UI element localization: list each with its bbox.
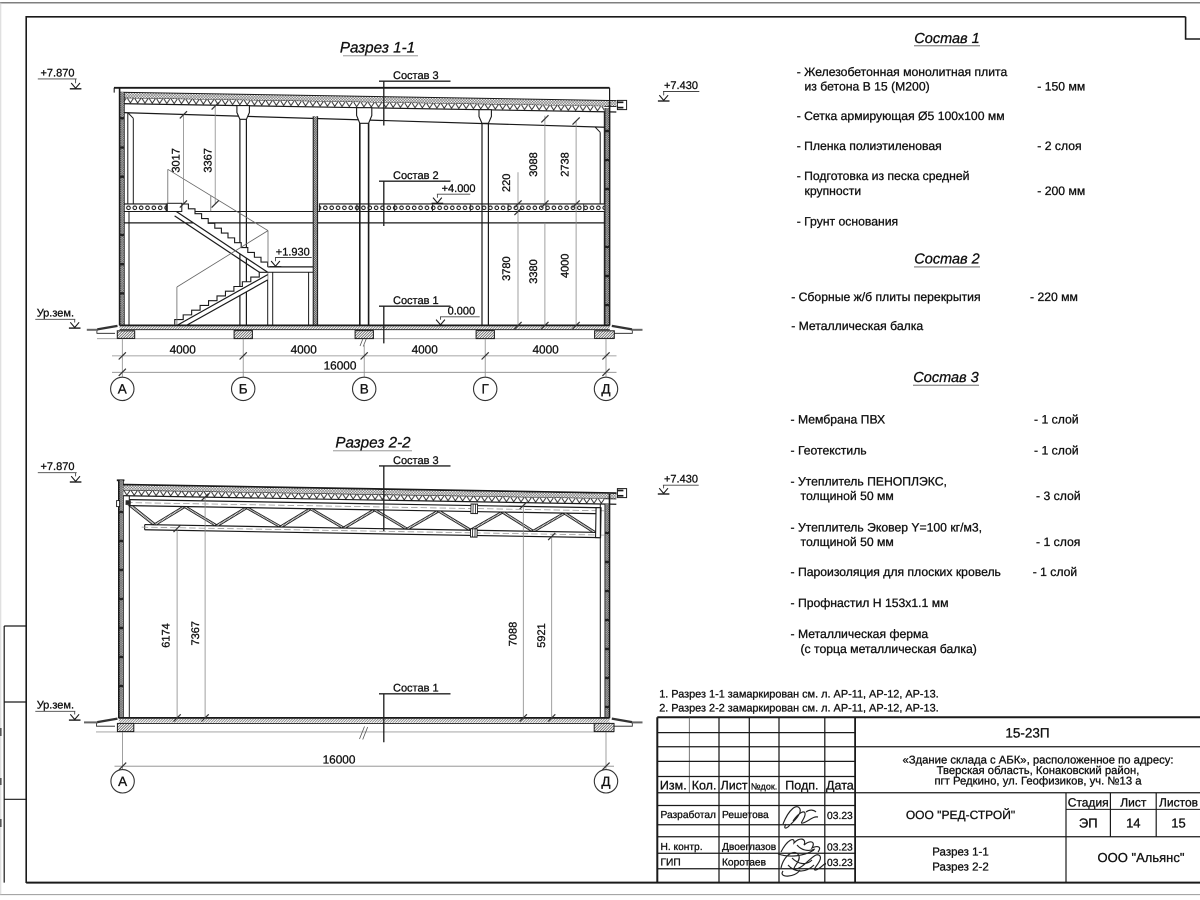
svg-text:3088: 3088: [528, 152, 540, 176]
svg-text:+7.430: +7.430: [664, 473, 698, 485]
svg-text:- Профнастил Н 153х1.1 мм: - Профнастил Н 153х1.1 мм: [791, 596, 949, 610]
svg-text:+1.930: +1.930: [276, 246, 310, 258]
svg-text:+7.870: +7.870: [41, 461, 75, 473]
svg-text:16000: 16000: [323, 752, 356, 766]
svg-text:- Геотекстиль: - Геотекстиль: [791, 444, 867, 458]
svg-text:Состав 1: Состав 1: [393, 683, 439, 695]
svg-text:Состав 1: Состав 1: [393, 295, 439, 307]
svg-text:4000: 4000: [412, 342, 439, 356]
svg-text:Состав 1: Состав 1: [914, 31, 979, 47]
svg-text:Ур.зем.: Ур.зем.: [37, 700, 74, 712]
svg-text:3380: 3380: [528, 259, 540, 283]
svg-text:+4.000: +4.000: [442, 183, 476, 195]
svg-text:Д: Д: [601, 774, 610, 789]
svg-text:- 1 слой: - 1 слой: [1033, 565, 1078, 579]
svg-text:Лист: Лист: [1120, 796, 1147, 810]
svg-text:- Пароизоляция для плоских кро: - Пароизоляция для плоских кровель: [791, 565, 1001, 579]
svg-text:- Пленка полиэтиленовая: - Пленка полиэтиленовая: [797, 139, 942, 153]
svg-text:4000: 4000: [291, 342, 318, 356]
svg-text:Г: Г: [482, 382, 490, 397]
svg-text:В: В: [360, 382, 369, 397]
svg-text:- Металлическая балка: - Металлическая балка: [791, 319, 923, 333]
svg-text:из бетона В 15 (М200): из бетона В 15 (М200): [805, 80, 930, 94]
svg-text:толщиной 50 мм: толщиной 50 мм: [801, 535, 894, 549]
svg-text:Состав 2: Состав 2: [393, 170, 439, 182]
svg-text:- 2 слоя: - 2 слоя: [1037, 139, 1081, 153]
svg-text:220: 220: [501, 174, 513, 192]
svg-text:7088: 7088: [508, 622, 520, 646]
svg-text:- 3 слой: - 3 слой: [1036, 489, 1081, 503]
svg-text:Ур.зем.: Ур.зем.: [37, 307, 74, 319]
svg-text:- 150 мм: - 150 мм: [1037, 80, 1085, 94]
svg-text:Б: Б: [239, 382, 248, 397]
svg-text:2738: 2738: [559, 152, 571, 176]
svg-text:15: 15: [1171, 816, 1185, 831]
svg-text:Д: Д: [601, 382, 610, 397]
svg-text:6174: 6174: [160, 623, 172, 647]
svg-text:- Подготовка из песка средней: - Подготовка из песка средней: [797, 169, 970, 183]
svg-text:- 1 слой: - 1 слой: [1034, 413, 1079, 427]
svg-text:7367: 7367: [190, 621, 202, 645]
svg-text:Кол.: Кол.: [692, 778, 717, 792]
svg-text:16000: 16000: [324, 359, 357, 373]
svg-text:Коротаев: Коротаев: [722, 858, 766, 869]
svg-text:0.000: 0.000: [448, 305, 476, 317]
svg-text:- Грунт основания: - Грунт основания: [797, 215, 898, 229]
svg-text:+7.870: +7.870: [41, 68, 75, 80]
svg-text:Разрез 2-2: Разрез 2-2: [335, 435, 411, 452]
svg-text:ООО "Альянс": ООО "Альянс": [1098, 850, 1185, 865]
svg-text:+7.430: +7.430: [664, 80, 698, 92]
svg-text:- 1 слой: - 1 слой: [1034, 444, 1079, 458]
svg-text:Разрез 2-2: Разрез 2-2: [932, 862, 988, 874]
svg-text:А: А: [118, 774, 127, 789]
svg-text:Н. контр.: Н. контр.: [661, 842, 703, 853]
svg-text:Разработал: Разработал: [661, 810, 717, 821]
svg-text:5921: 5921: [536, 623, 548, 647]
svg-text:4000: 4000: [532, 342, 559, 356]
svg-text:3780: 3780: [501, 256, 513, 280]
svg-text:4000: 4000: [559, 254, 571, 278]
svg-text:03.23: 03.23: [827, 858, 853, 869]
svg-text:(с торца металлическая балка): (с торца металлическая балка): [801, 642, 977, 656]
svg-text:Решетова: Решетова: [722, 810, 769, 821]
svg-text:Состав 3: Состав 3: [393, 455, 439, 467]
svg-text:- Мембрана ПВХ: - Мембрана ПВХ: [791, 413, 886, 427]
svg-text:4000: 4000: [170, 342, 197, 356]
svg-text:3367: 3367: [202, 148, 214, 172]
svg-text:- 1 слоя: - 1 слоя: [1036, 535, 1080, 549]
svg-text:толщиной 50 мм: толщиной 50 мм: [801, 489, 894, 503]
svg-text:пгт Редкино, ул. Геофизиков, у: пгт Редкино, ул. Геофизиков, уч. №13 а: [934, 776, 1142, 788]
svg-text:Лист: Лист: [721, 778, 748, 792]
svg-text:- Сборные ж/б плиты перекрытия: - Сборные ж/б плиты перекрытия: [791, 290, 980, 304]
svg-text:Состав 3: Состав 3: [393, 70, 439, 82]
svg-text:03.23: 03.23: [827, 842, 853, 853]
svg-text:крупности: крупности: [805, 184, 862, 198]
svg-text:1. Разрез 1-1 замаркирован см.: 1. Разрез 1-1 замаркирован см. л. АР-11,…: [659, 689, 939, 701]
svg-text:- Железобетонная монолитная п: - Железобетонная монолитная плита: [797, 65, 1008, 79]
svg-text:- Утеплитель ПЕНОПЛЭКС,: - Утеплитель ПЕНОПЛЭКС,: [791, 474, 947, 488]
svg-text:Дата: Дата: [826, 778, 854, 792]
svg-text:- Сетка армирующая Ø5 100х100: - Сетка армирующая Ø5 100х100 мм: [797, 109, 1005, 123]
svg-text:Разрез 1-1: Разрез 1-1: [932, 847, 988, 859]
svg-text:Разрез 1-1: Разрез 1-1: [340, 40, 415, 57]
svg-text:№док.: №док.: [751, 781, 777, 791]
svg-text:ГИП: ГИП: [661, 858, 681, 869]
svg-text:14: 14: [1126, 816, 1140, 831]
svg-text:03.23: 03.23: [827, 811, 853, 822]
svg-text:Состав 3: Состав 3: [913, 370, 978, 386]
svg-text:Состав 2: Состав 2: [914, 252, 979, 268]
svg-text:2. Разрез 2-2 замаркирован см.: 2. Разрез 2-2 замаркирован см. л. АР-11,…: [659, 702, 939, 714]
svg-text:Изм.: Изм.: [660, 778, 687, 792]
svg-text:Подп.: Подп.: [785, 778, 818, 792]
svg-text:3017: 3017: [171, 148, 183, 172]
svg-text:Листов: Листов: [1159, 796, 1198, 810]
svg-text:А: А: [118, 382, 127, 397]
svg-text:- 220 мм: - 220 мм: [1030, 290, 1078, 304]
svg-text:ООО "РЕД-СТРОЙ": ООО "РЕД-СТРОЙ": [906, 808, 1015, 822]
svg-text:- Утеплитель Эковер Y=100 кг/м: - Утеплитель Эковер Y=100 кг/м3,: [791, 520, 983, 534]
svg-text:15-23П: 15-23П: [1005, 725, 1049, 740]
svg-text:ЭП: ЭП: [1079, 816, 1098, 831]
svg-text:- Металлическая ферма: - Металлическая ферма: [791, 627, 929, 641]
svg-text:Стадия: Стадия: [1068, 796, 1109, 810]
svg-text:- 200 мм: - 200 мм: [1037, 184, 1085, 198]
svg-text:Двоеглазов: Двоеглазов: [722, 842, 776, 853]
